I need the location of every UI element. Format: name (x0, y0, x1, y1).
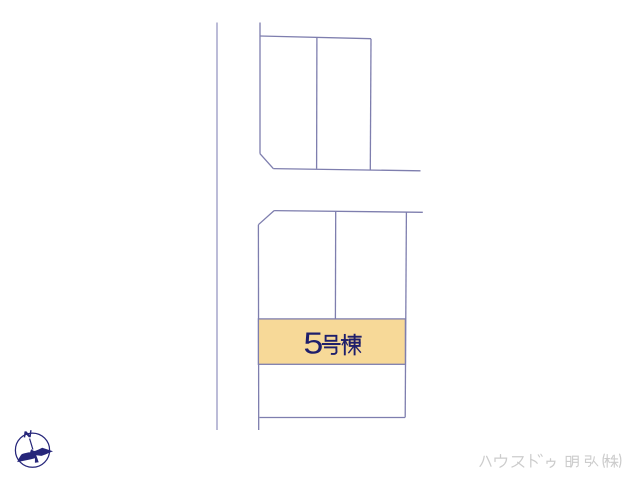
svg-text:5: 5 (303, 326, 323, 361)
